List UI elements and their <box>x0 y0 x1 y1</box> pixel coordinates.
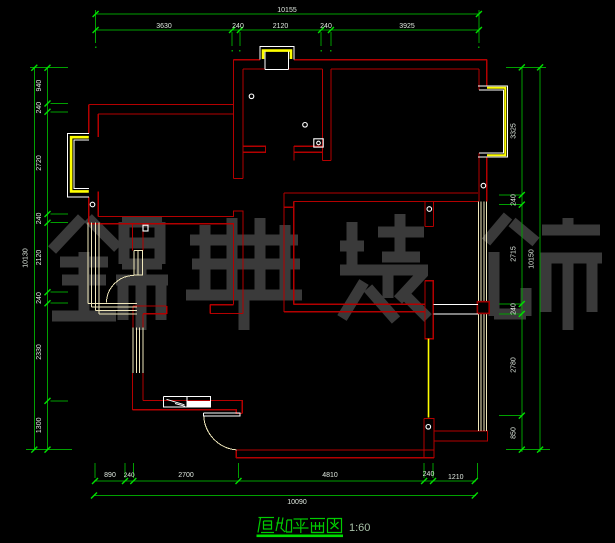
svg-text:240: 240 <box>36 292 43 304</box>
svg-text:3630: 3630 <box>156 23 172 30</box>
svg-text:240: 240 <box>36 102 43 114</box>
svg-text:240: 240 <box>423 471 435 478</box>
svg-text:240: 240 <box>36 212 43 224</box>
svg-text:940: 940 <box>36 80 43 92</box>
svg-text:2120: 2120 <box>273 23 289 30</box>
svg-text:1300: 1300 <box>36 417 43 433</box>
svg-text:850: 850 <box>511 427 518 439</box>
svg-text:3925: 3925 <box>399 23 415 30</box>
svg-text:2720: 2720 <box>36 155 43 171</box>
svg-text:10130: 10130 <box>23 248 30 268</box>
svg-text:1210: 1210 <box>448 474 464 481</box>
svg-text:890: 890 <box>104 472 116 479</box>
svg-text:240: 240 <box>511 303 518 315</box>
svg-text:240: 240 <box>124 472 135 479</box>
svg-text:240: 240 <box>511 194 518 206</box>
svg-text:240: 240 <box>232 23 244 30</box>
svg-text:1:60: 1:60 <box>349 522 370 534</box>
svg-text:2780: 2780 <box>511 357 518 373</box>
svg-text:10090: 10090 <box>287 499 307 506</box>
svg-text:10155: 10155 <box>277 7 297 14</box>
svg-text:4810: 4810 <box>322 472 338 479</box>
svg-text:2330: 2330 <box>36 344 43 360</box>
svg-text:2715: 2715 <box>511 246 518 262</box>
svg-text:2120: 2120 <box>36 250 43 266</box>
svg-text:2700: 2700 <box>178 472 194 479</box>
svg-text:240: 240 <box>320 23 332 30</box>
svg-text:3325: 3325 <box>511 123 518 139</box>
svg-text:10150: 10150 <box>529 249 536 269</box>
